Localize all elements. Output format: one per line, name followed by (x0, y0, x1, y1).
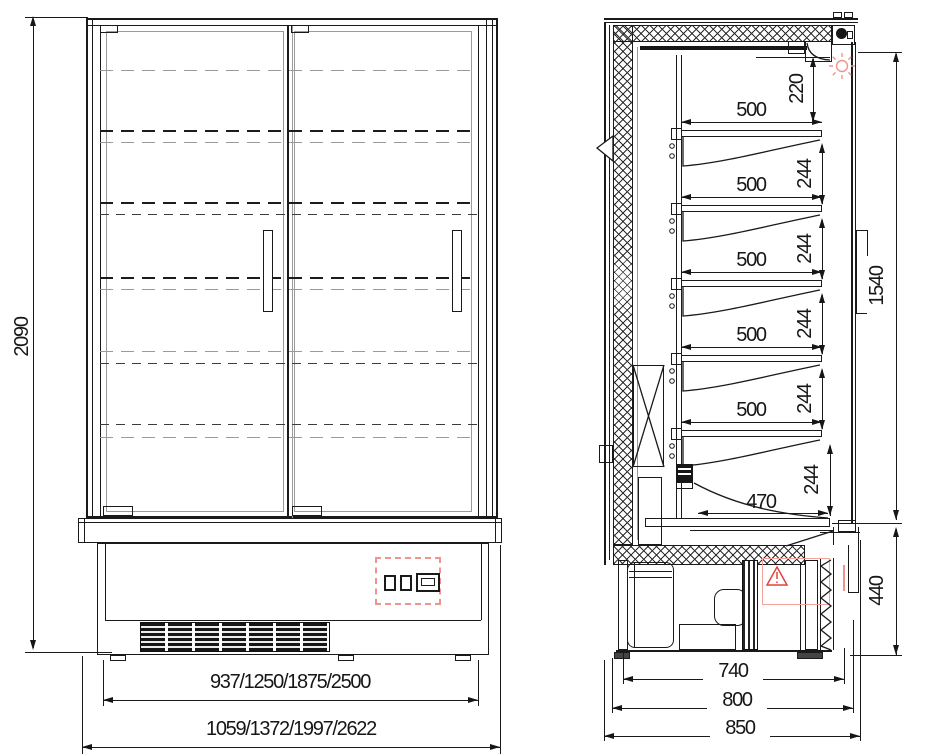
arrow-left-icon (698, 510, 708, 516)
arrow-left-icon (604, 733, 614, 739)
shelf (681, 430, 822, 437)
arrow-left-icon (681, 344, 691, 350)
canopy-top-line (604, 18, 858, 20)
hinge-cover (833, 12, 842, 18)
shelf (681, 355, 822, 362)
canopy-detail (847, 31, 853, 39)
dim-label-top-gap: 220 (787, 69, 807, 109)
shelf-dashed-line (100, 142, 478, 143)
bottom-deck (645, 518, 830, 527)
foot (455, 655, 471, 661)
shelf-dashed-line (100, 70, 478, 71)
dim-label-inner-width: 937/1250/1875/2500 (170, 672, 410, 692)
foot (797, 652, 823, 659)
arrow-right-icon (843, 705, 853, 711)
arrow-up-icon (819, 143, 825, 153)
shelf-clip (671, 353, 682, 365)
technical-drawing-canvas: 2090 (0, 0, 935, 756)
dim-label-base-depth: 800 (707, 690, 767, 710)
arrow-left-icon (681, 194, 691, 200)
arrow-right-icon (818, 510, 828, 516)
dim-label-door-height: 1540 (867, 256, 887, 316)
shelf-clip (671, 428, 682, 440)
plinth-line (105, 543, 106, 620)
arrow-right-icon (834, 676, 844, 682)
hinge-cover (844, 12, 853, 18)
back-panel-line (604, 22, 606, 565)
thermostat-display-screen (421, 578, 435, 586)
warning-zone (762, 558, 830, 605)
glass-door-section (851, 42, 853, 523)
arrow-up-icon (893, 527, 899, 537)
inner-liner-line (632, 42, 633, 545)
fan-slot (678, 468, 691, 470)
door-bottom-pivot (838, 520, 856, 532)
back-panel-line (609, 25, 610, 560)
arrow-left-icon (82, 744, 92, 750)
foot (338, 655, 354, 661)
shelf-dashed-line (100, 363, 478, 364)
arrow-right-icon (490, 744, 500, 750)
dim-label-base-height: 440 (867, 571, 887, 611)
red-marker-line (843, 565, 845, 591)
dim-line-shelf-depth (681, 347, 822, 348)
air-duct-box (788, 41, 805, 54)
condensate-tray (679, 624, 736, 650)
canopy-insulation (613, 25, 832, 42)
compressor-line (629, 571, 672, 572)
dim-line-door-height (896, 54, 897, 520)
control-button (384, 575, 396, 591)
shelf-dashed-line (100, 214, 478, 215)
fan-motor-icon (836, 28, 847, 39)
evaporator (633, 365, 664, 467)
shelf (681, 205, 822, 212)
door-mullion (287, 25, 289, 518)
shelf-dashed-line (100, 424, 478, 425)
dim-label-shelf-depth: 500 (721, 175, 781, 195)
dim-label-shelf-pitch: 244 (795, 304, 815, 344)
extension-line (604, 660, 605, 741)
shelf-clip (671, 203, 682, 215)
deck-underside-line (690, 530, 833, 531)
dim-label-shelf-depth: 500 (721, 250, 781, 270)
arrow-left-icon (103, 697, 113, 703)
shelf-clip (671, 278, 682, 290)
plinth-line (481, 543, 482, 620)
dim-line-height (33, 20, 34, 648)
arrow-up-icon (819, 368, 825, 378)
foot (614, 652, 630, 659)
door-hinge-top-left (100, 25, 118, 33)
rail-clips (670, 144, 675, 459)
canopy-line (604, 22, 858, 23)
dim-line-shelf-depth (681, 197, 822, 198)
shelf-clip (671, 128, 682, 140)
arrow-up-icon (810, 57, 816, 67)
wall-mount-rail (599, 445, 613, 463)
foot (110, 655, 126, 661)
frame-line (492, 20, 493, 518)
condenser-coil (742, 560, 758, 650)
frame-line (478, 25, 479, 518)
dim-label-shelf-depth: 500 (721, 400, 781, 420)
arrow-down-icon (819, 195, 825, 205)
dim-line-deck-depth (698, 513, 828, 514)
arrow-up-icon (819, 293, 825, 303)
arrow-down-icon (819, 420, 825, 430)
arrow-left-icon (681, 119, 691, 125)
compressor-line (629, 577, 672, 578)
base-front-panel-line (848, 545, 849, 592)
arrow-left-icon (623, 676, 633, 682)
base-band-line (78, 522, 502, 523)
base-band-end (495, 518, 496, 543)
door-hinge-top-right (291, 25, 309, 33)
extension-line (25, 17, 88, 18)
extension-line (82, 656, 83, 754)
dim-label-shelf-pitch: 244 (802, 460, 822, 500)
dim-line-shelf-depth (681, 122, 822, 123)
extension-line (860, 540, 861, 741)
dim-label-shelf-depth: 500 (721, 325, 781, 345)
shelf-dashed-line (100, 351, 478, 352)
fan-mount (676, 482, 693, 489)
frame-line (486, 20, 487, 518)
ventilation-grille (140, 622, 330, 652)
dim-label-shelf-pitch: 244 (795, 379, 815, 419)
dim-label-height: 2090 (12, 309, 32, 365)
dim-line-shelf-depth (681, 422, 822, 423)
shelf-dashed-line (100, 130, 478, 132)
base-grille-edge (833, 558, 834, 650)
compressor-line (634, 563, 635, 647)
arrow-up-icon (827, 444, 833, 454)
arrow-up-icon (893, 52, 899, 62)
arrow-left-icon (681, 419, 691, 425)
extension-line (832, 523, 902, 524)
door-pivot-bottom-right (292, 506, 322, 516)
dim-label-base-depth: 740 (703, 661, 763, 681)
arrow-left-icon (681, 269, 691, 275)
glass-door-right (294, 31, 472, 512)
arrow-down-icon (810, 112, 816, 122)
arrow-down-icon (819, 345, 825, 355)
shelf (681, 130, 822, 137)
frame-line (92, 20, 93, 518)
arrow-down-icon (30, 640, 36, 650)
floor-slope-line (786, 531, 833, 546)
shelf-dashed-line (100, 289, 478, 290)
shelf-dashed-line (100, 277, 478, 279)
base-band-end (84, 518, 85, 543)
back-insulation (613, 25, 633, 545)
shelf-dashed-line (100, 202, 478, 204)
dim-line-base-height (896, 529, 897, 655)
arrow-down-icon (819, 270, 825, 280)
arrow-down-icon (893, 645, 899, 655)
arrow-down-icon (893, 510, 899, 520)
shelf (681, 280, 822, 287)
shelf-dashed-line (100, 437, 478, 438)
plinth-line (105, 620, 481, 621)
door-handle-left (263, 230, 273, 312)
extension-line (844, 648, 845, 684)
arrow-right-icon (850, 733, 860, 739)
frame-line (100, 25, 101, 518)
dim-label-shelf-depth: 500 (721, 100, 781, 120)
base-front-panel-line (858, 527, 859, 592)
extension-line (853, 620, 854, 713)
dim-line-shelf-depth (681, 272, 822, 273)
glass-door-left (106, 31, 284, 512)
dim-label-overall-width: 1059/1372/1997/2622 (171, 719, 411, 739)
sill-line (833, 527, 834, 545)
door-handle-right (452, 230, 462, 312)
dim-line-inner-width (103, 700, 478, 701)
extension-line (756, 57, 830, 58)
dim-label-base-depth: 850 (710, 718, 770, 738)
dim-label-shelf-pitch: 244 (795, 154, 815, 194)
extension-line (478, 660, 479, 706)
arrow-right-icon (468, 697, 478, 703)
door-sill-line (820, 532, 860, 533)
dim-line-overall-width (82, 747, 500, 748)
extension-line (500, 545, 501, 754)
door-pivot-bottom-left (103, 506, 133, 516)
door-mullion-line (292, 25, 293, 518)
arrow-up-icon (819, 218, 825, 228)
control-button (400, 575, 412, 591)
base-front-panel-line (848, 592, 859, 593)
extension-line (850, 655, 902, 656)
dim-label-deck-depth: 470 (731, 492, 791, 512)
arrow-left-icon (612, 705, 622, 711)
ceiling-panel (640, 46, 807, 50)
air-duct (638, 477, 662, 545)
fan-slot (678, 473, 691, 475)
dim-label-shelf-pitch: 244 (795, 229, 815, 269)
